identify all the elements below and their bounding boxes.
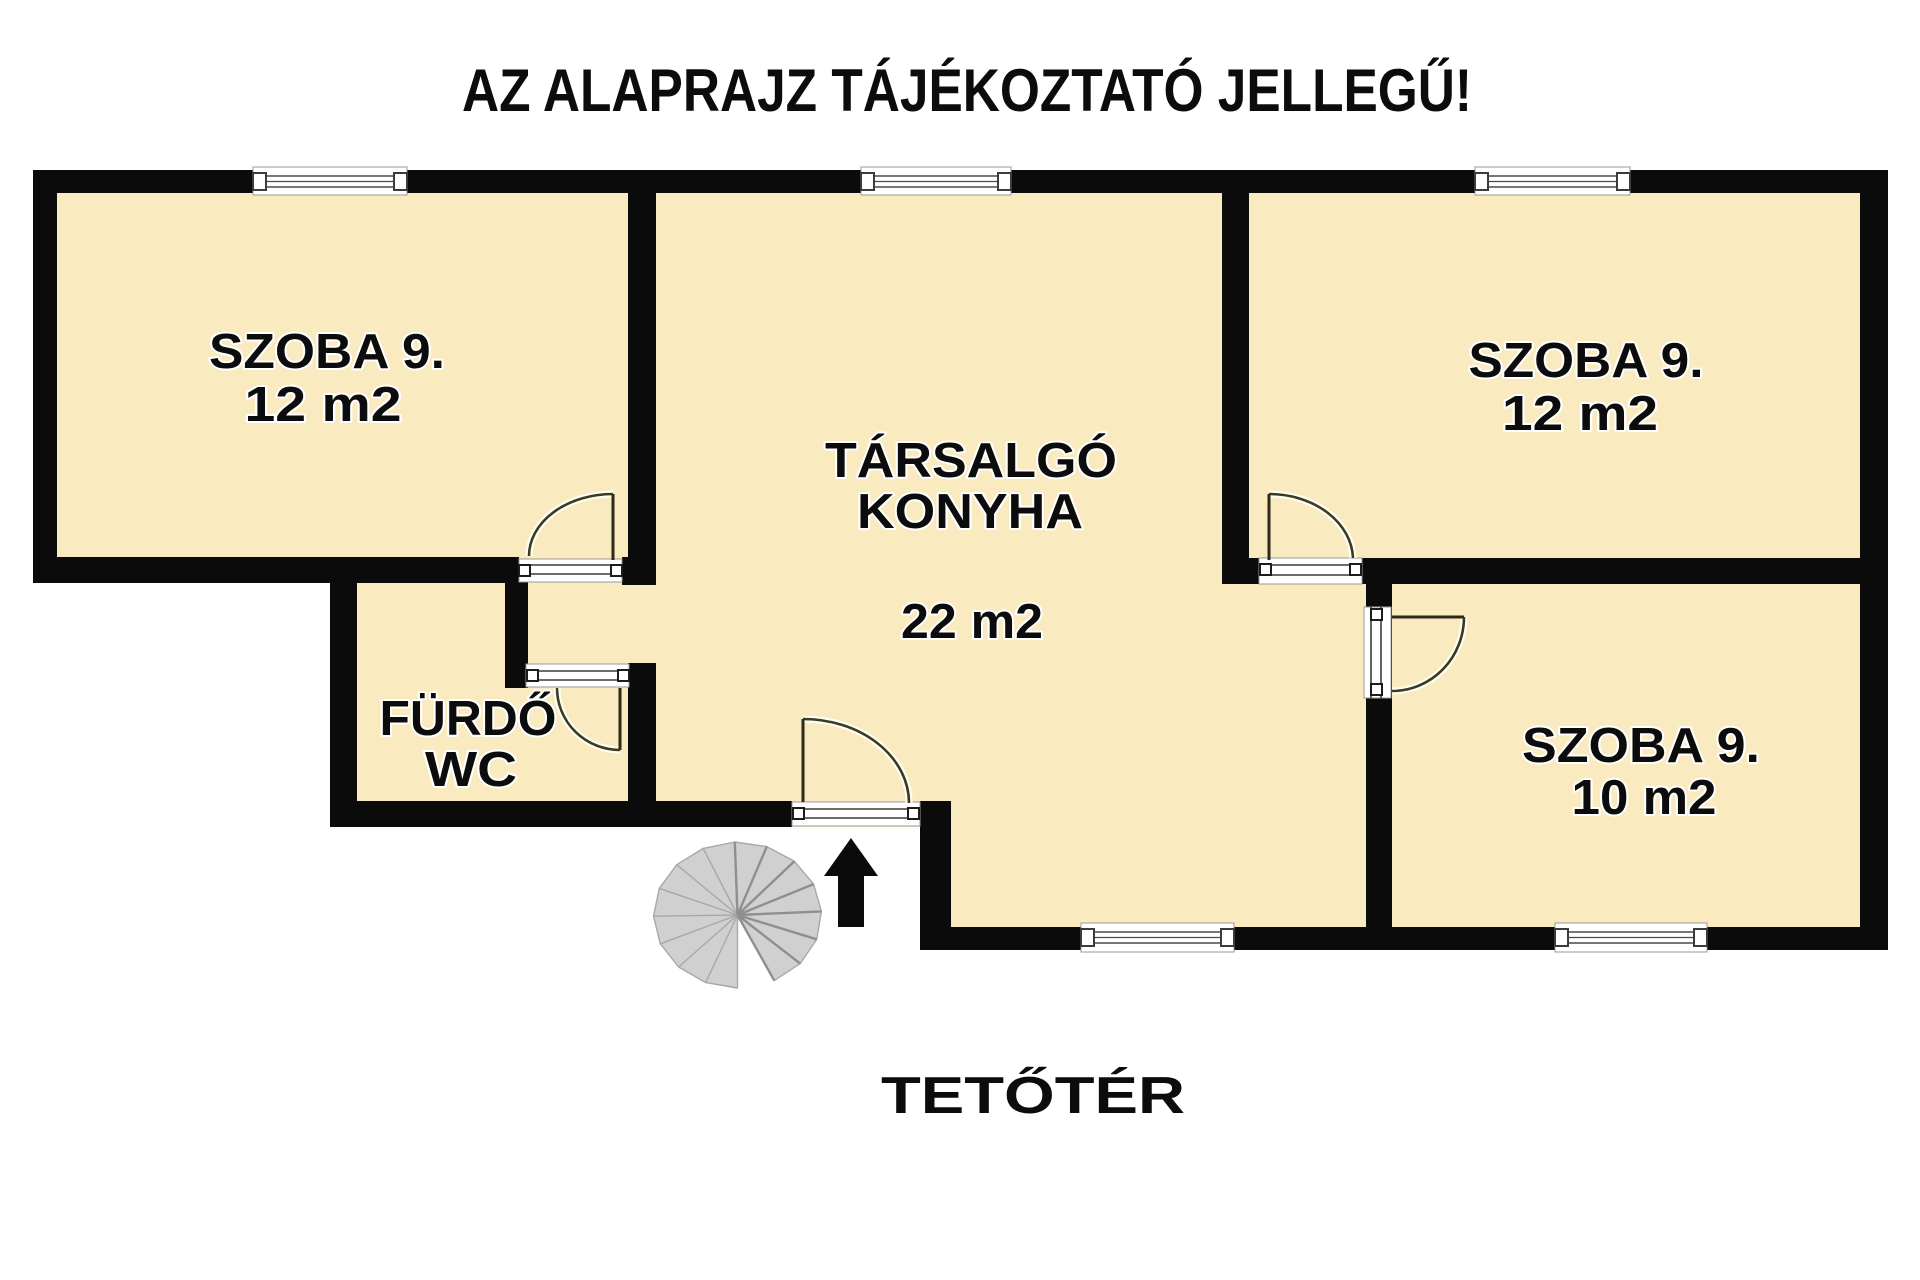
- svg-text:TETŐTÉR: TETŐTÉR: [881, 1066, 1185, 1125]
- svg-text:WC: WC: [425, 743, 517, 797]
- svg-text:SZOBA 9.: SZOBA 9.: [209, 325, 445, 379]
- svg-text:AZ ALAPRAJZ TÁJÉKOZTATÓ JELLEG: AZ ALAPRAJZ TÁJÉKOZTATÓ JELLEGŰ!: [462, 57, 1472, 124]
- svg-text:FÜRDŐ: FÜRDŐ: [380, 692, 557, 746]
- svg-text:10 m2: 10 m2: [1572, 771, 1717, 825]
- svg-text:12 m2: 12 m2: [1502, 387, 1658, 441]
- svg-text:SZOBA 9.: SZOBA 9.: [1469, 334, 1704, 388]
- svg-text:KONYHA: KONYHA: [857, 485, 1083, 539]
- svg-text:SZOBA 9.: SZOBA 9.: [1522, 719, 1760, 773]
- svg-text:22 m2: 22 m2: [901, 595, 1043, 649]
- svg-text:12 m2: 12 m2: [245, 378, 402, 432]
- svg-text:TÁRSALGÓ: TÁRSALGÓ: [825, 433, 1117, 488]
